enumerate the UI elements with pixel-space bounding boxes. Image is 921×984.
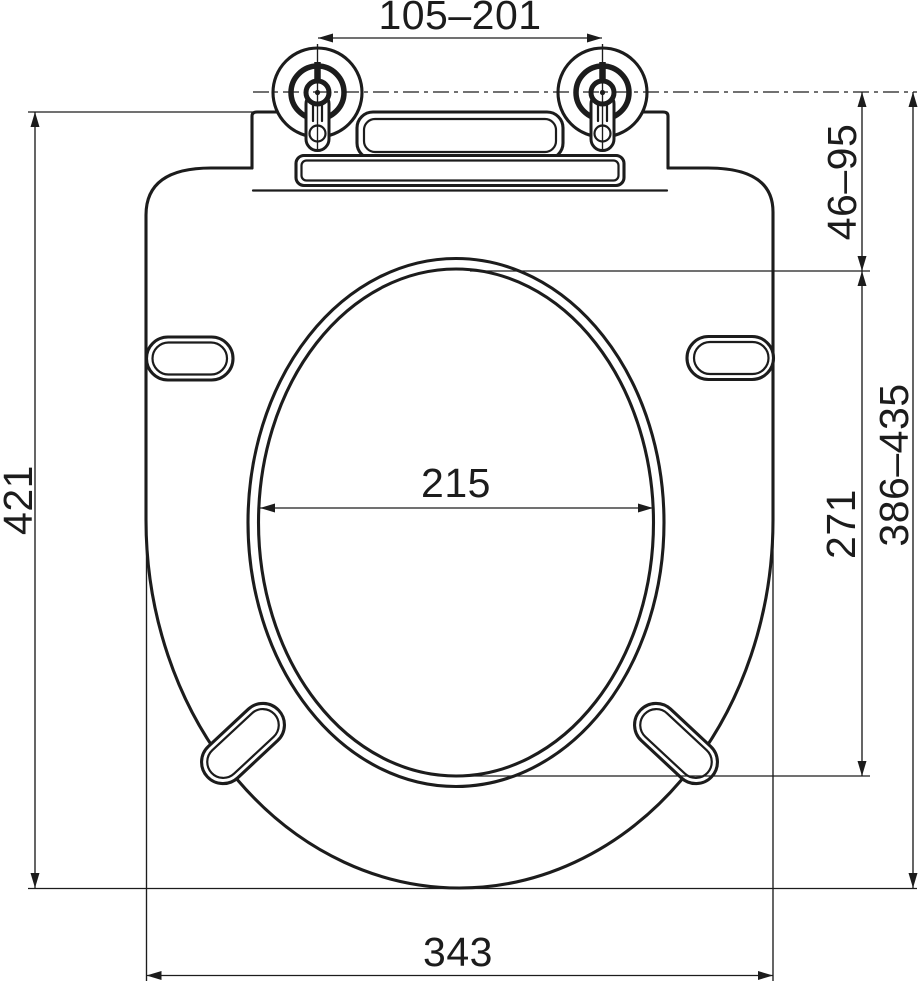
slot-outer (626, 695, 727, 793)
arrowhead-top (909, 92, 918, 107)
hinge-assembly (253, 44, 917, 186)
opening-inner-rim (259, 269, 654, 776)
inner-opening (248, 259, 664, 787)
dimension-overall-width: 343 (147, 929, 774, 980)
dimension-hinge-to-opening: 46–95 (819, 92, 867, 271)
arrowhead-right (587, 34, 602, 43)
seat-body-outline (146, 168, 773, 888)
arrowhead-bottom (909, 873, 918, 888)
arrowhead-left (260, 504, 275, 513)
arrowhead-top (31, 112, 40, 127)
technical-drawing-page: 105–201 421 46–95 271 386–435 215 (0, 0, 921, 984)
hinge-knob-left (273, 44, 362, 152)
arrowhead-top (858, 92, 867, 107)
mounting-slot-bottom-right (626, 695, 727, 793)
arrowhead-left (318, 34, 333, 43)
arrowhead-bottom (858, 761, 867, 776)
slot-outer (193, 695, 294, 793)
dimension-label: 105–201 (378, 0, 541, 38)
dimension-hinge-to-front: 386–435 (871, 92, 918, 888)
mounting-slot-top-right (687, 337, 774, 380)
mounting-slot-bottom-left (193, 695, 294, 793)
dimension-label: 421 (0, 465, 41, 535)
arrowhead-bottom (858, 256, 867, 271)
dimension-overall-length: 421 (0, 112, 41, 888)
hinge-knob-right (558, 44, 647, 152)
arrowhead-bottom (31, 873, 40, 888)
dimension-label: 343 (423, 929, 493, 975)
extension-lines (28, 112, 917, 981)
dimension-label: 386–435 (871, 383, 917, 546)
dimension-opening-width: 215 (260, 460, 653, 513)
dimension-label: 46–95 (819, 124, 865, 241)
mounting-slot-top-left (147, 337, 234, 380)
arrowhead-right (638, 504, 653, 513)
dimension-label: 215 (421, 460, 491, 506)
opening-outer-rim (248, 259, 664, 787)
dimension-label: 271 (818, 489, 864, 559)
arrowhead-left (147, 971, 162, 980)
dimension-opening-length: 271 (818, 271, 867, 776)
arrowhead-right (758, 971, 773, 980)
dimension-hinge-spacing: 105–201 (318, 0, 602, 43)
arrowhead-top (858, 271, 867, 286)
technical-drawing-canvas: 105–201 421 46–95 271 386–435 215 (0, 0, 921, 984)
